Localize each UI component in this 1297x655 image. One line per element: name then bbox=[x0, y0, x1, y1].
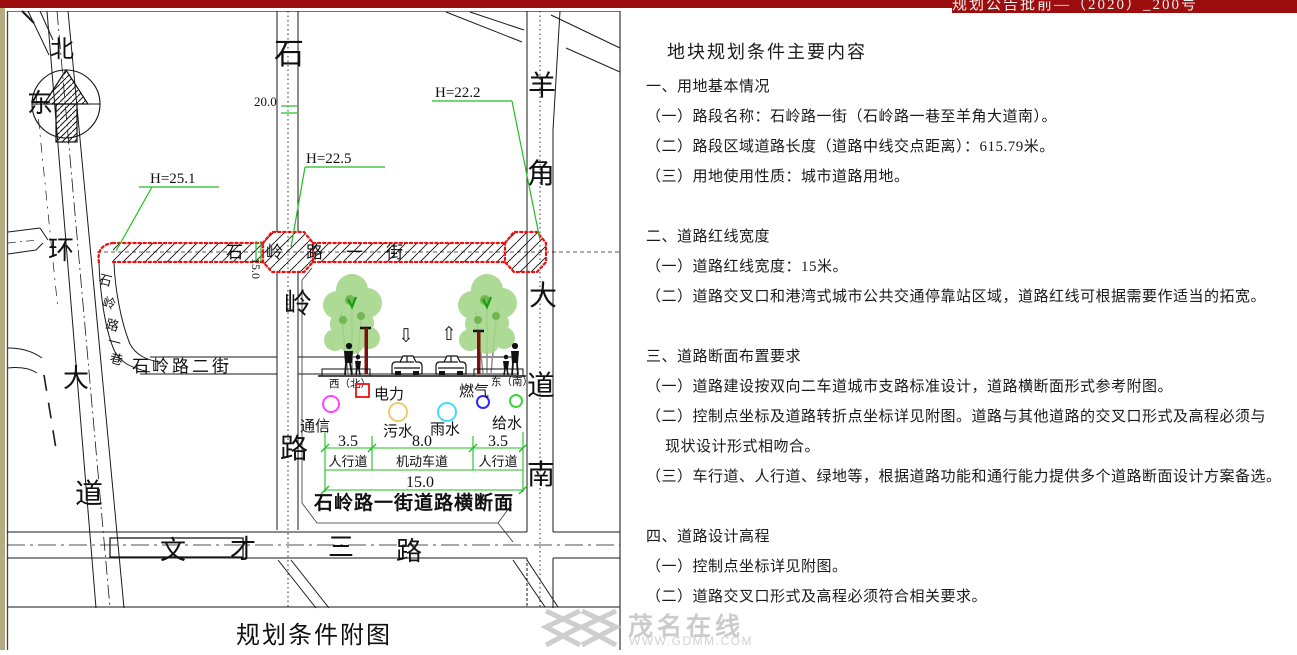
wencai-road-3-road bbox=[7, 532, 620, 558]
item-3-1: （一）道路建设按双向二车道城市支路标准设计，道路横断面形式参考附图。 bbox=[646, 372, 1297, 402]
section-4-header: 四、道路设计高程 bbox=[646, 522, 1297, 552]
east-ring-char-2: 大 bbox=[63, 364, 89, 393]
lane-left-label: 人行道 bbox=[328, 454, 367, 469]
utility-legend: 电力 通信 污水 雨水 燃气 给水 bbox=[300, 382, 522, 440]
tree-right bbox=[458, 274, 517, 373]
section-1-header: 一、用地基本情况 bbox=[646, 72, 1297, 102]
sewage-symbol bbox=[389, 403, 407, 421]
lane-char-4: 巷 bbox=[108, 350, 124, 368]
dim-mid: 8.0 bbox=[412, 433, 432, 450]
dim-15-vertical-label: 15.0 bbox=[249, 258, 263, 279]
east-direction-label: 东（南） bbox=[491, 375, 533, 388]
lane-mid-label: 机动车道 bbox=[396, 454, 448, 469]
storm-symbol bbox=[438, 403, 456, 421]
yangjiao-char-4: 南 bbox=[527, 459, 555, 491]
dim-20-label: 20.0 bbox=[254, 94, 277, 109]
planning-map-sheet: 北 东 环 大 道 石 岭 路 羊 角 大 道 南 石岭路一街 石 岭 路 一 … bbox=[0, 0, 623, 650]
item-3-3: （三）车行道、人行道、绿地等，根据道路功能和通行能力提供多个道路断面设计方案备选… bbox=[646, 462, 1297, 492]
wencai-char-0: 文 bbox=[160, 536, 186, 565]
item-1-1: （一）路段名称：石岭路一街（石岭路一巷至羊角大道南）。 bbox=[646, 102, 1297, 132]
dim-left: 3.5 bbox=[338, 433, 358, 450]
lane-char-1: 岭 bbox=[101, 294, 117, 312]
item-2-1: （一）道路红线宽度：15米。 bbox=[646, 252, 1297, 282]
sewage-label: 污水 bbox=[383, 423, 413, 440]
cross-section-diagram: ⇩ ⇧ 西（北） 东（南） 电力 通信 污水 雨水 燃气 给水 bbox=[300, 274, 533, 514]
scan-edge-strip bbox=[0, 0, 5, 650]
traffic-arrow-down: ⇩ bbox=[398, 326, 414, 347]
sheet-caption: 规划条件附图 bbox=[236, 622, 392, 649]
h-mark-22-5: H=22.5 bbox=[306, 151, 352, 167]
cross-section-title: 石岭路一街道路横断面 bbox=[313, 491, 514, 514]
document-number-text: 规划公告批前—（2020）_200号 bbox=[952, 0, 1297, 13]
section-2-header: 二、道路红线宽度 bbox=[646, 222, 1297, 252]
water-symbol bbox=[510, 395, 522, 407]
lane-char-2: 路 bbox=[104, 316, 120, 334]
east-ring-char-0: 东 bbox=[27, 89, 53, 118]
item-4-1: （一）控制点坐标详见附图。 bbox=[646, 552, 1297, 582]
yangjiao-char-2: 大 bbox=[529, 280, 557, 312]
lane-char-3: 一 bbox=[106, 333, 122, 351]
h-mark-25-1: H=25.1 bbox=[150, 171, 196, 187]
telecom-symbol bbox=[323, 396, 339, 412]
yangjiao-char-0: 羊 bbox=[528, 70, 556, 102]
shiling-char-0: 石 bbox=[274, 38, 304, 71]
car-right bbox=[436, 356, 466, 375]
document-number-banner: 规划公告批前—（2020）_200号 bbox=[952, 0, 1297, 13]
item-3-2-continuation: 现状设计形式相吻合。 bbox=[665, 432, 1297, 462]
shiling-char-1: 岭 bbox=[284, 288, 312, 320]
item-3-2: （二）控制点坐标及道路转折点坐标详见附图。道路与其他道路的交叉口形式及高程必须与 bbox=[646, 402, 1297, 432]
panel-title: 地块规划条件主要内容 bbox=[667, 38, 1297, 64]
section-3-header: 三、道路断面布置要求 bbox=[646, 342, 1297, 372]
planning-conditions-panel: 地块规划条件主要内容 一、用地基本情况 （一）路段名称：石岭路一街（石岭路一巷至… bbox=[625, 8, 1297, 650]
water-label: 给水 bbox=[492, 415, 522, 432]
wencai-char-1: 才 bbox=[230, 535, 256, 564]
storm-label: 雨水 bbox=[430, 421, 460, 438]
item-2-2: （二）道路交叉口和港湾式城市公共交通停靠站区域，道路红线可根据需要作适当的拓宽。 bbox=[646, 282, 1297, 312]
h-mark-22-2: H=22.2 bbox=[435, 85, 481, 101]
dim-total: 15.0 bbox=[406, 474, 434, 491]
dim-right: 3.5 bbox=[488, 433, 508, 450]
lane-right-label: 人行道 bbox=[478, 454, 517, 469]
tree-left bbox=[323, 274, 382, 373]
traffic-arrow-up: ⇧ bbox=[441, 324, 457, 345]
east-ring-char-1: 环 bbox=[48, 236, 74, 265]
wencai-char-2: 三 bbox=[328, 533, 354, 562]
car-left bbox=[392, 356, 422, 375]
wencai-char-3: 路 bbox=[396, 537, 422, 566]
shiling-char-2: 路 bbox=[280, 433, 308, 465]
compass-north-label: 北 bbox=[50, 36, 74, 63]
lane-char-0: 石 bbox=[97, 271, 113, 289]
east-ring-char-3: 道 bbox=[75, 478, 103, 510]
item-1-2: （二）路段区域道路长度（道路中线交点距离）：615.79米。 bbox=[646, 132, 1297, 162]
power-label: 电力 bbox=[374, 386, 404, 403]
yangjiao-char-1: 角 bbox=[527, 158, 555, 190]
item-1-3: （三）用地使用性质：城市道路用地。 bbox=[646, 162, 1297, 192]
shiling-street-2-label: 石岭路二街 bbox=[132, 357, 232, 376]
item-4-2: （二）道路交叉口形式及高程必须符合相关要求。 bbox=[646, 582, 1297, 612]
planning-map-svg: 北 东 环 大 道 石 岭 路 羊 角 大 道 南 石岭路一街 石 岭 路 一 … bbox=[0, 0, 623, 650]
gas-label: 燃气 bbox=[459, 382, 489, 400]
